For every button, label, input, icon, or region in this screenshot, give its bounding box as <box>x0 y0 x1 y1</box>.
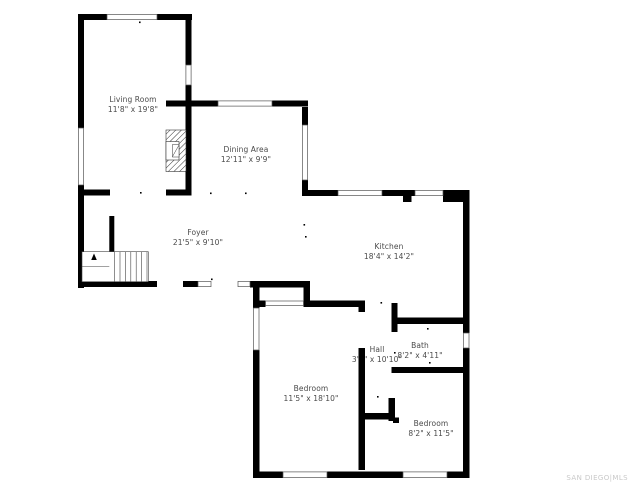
floorplan-drawing <box>0 0 640 486</box>
room-label-dining-area: Dining Area 12'11" x 9'9" <box>221 145 271 165</box>
room-name: Bedroom <box>408 419 453 429</box>
room-label-foyer: Foyer 21'5" x 9'10" <box>173 228 223 248</box>
window-icon <box>415 190 443 195</box>
window-icon <box>338 190 382 195</box>
window-icon <box>403 472 447 478</box>
wall-segment <box>359 348 366 364</box>
window-icon <box>302 125 307 180</box>
door-icon <box>198 281 211 286</box>
room-label-bedroom-left: Bedroom 11'5" x 18'10" <box>283 384 338 404</box>
room-label-kitchen: Kitchen 18'4" x 14'2" <box>364 242 414 262</box>
window-icon <box>463 333 469 348</box>
window-icon <box>186 65 191 85</box>
room-label-bath: Bath 8'2" x 4'11" <box>397 341 442 361</box>
sliding-door-icon <box>266 301 304 306</box>
staircase-icon <box>82 252 148 282</box>
floorplan-page: Living Room 11'8" x 19'8" Dining Area 12… <box>0 0 640 486</box>
room-name: Bedroom <box>283 384 338 394</box>
room-dimensions: 11'8" x 19'8" <box>108 105 158 115</box>
room-dimensions: 8'2" x 11'5" <box>408 429 453 439</box>
room-name: Living Room <box>108 95 158 105</box>
room-name: Kitchen <box>364 242 414 252</box>
room-dimensions: 12'11" x 9'9" <box>221 155 271 165</box>
room-dimensions: 18'4" x 14'2" <box>364 252 414 262</box>
window-icon <box>107 14 157 19</box>
door-frame-ticks <box>80 22 466 422</box>
room-dimensions: 8'2" x 4'11" <box>397 351 442 361</box>
room-name: Foyer <box>173 228 223 238</box>
window-icon <box>253 308 259 350</box>
room-name: Bath <box>397 341 442 351</box>
room-label-bedroom-right: Bedroom 8'2" x 11'5" <box>408 419 453 439</box>
room-dimensions: 11'5" x 18'10" <box>283 394 338 404</box>
door-icon <box>238 281 250 286</box>
window-icon <box>218 101 272 106</box>
window-icon <box>78 128 83 185</box>
room-name: Dining Area <box>221 145 271 155</box>
mls-watermark: SAN DIEGO|MLS <box>566 474 628 482</box>
fireplace-icon <box>166 130 186 172</box>
room-dimensions: 21'5" x 9'10" <box>173 238 223 248</box>
window-icon <box>283 472 327 478</box>
room-label-living-room: Living Room 11'8" x 19'8" <box>108 95 158 115</box>
